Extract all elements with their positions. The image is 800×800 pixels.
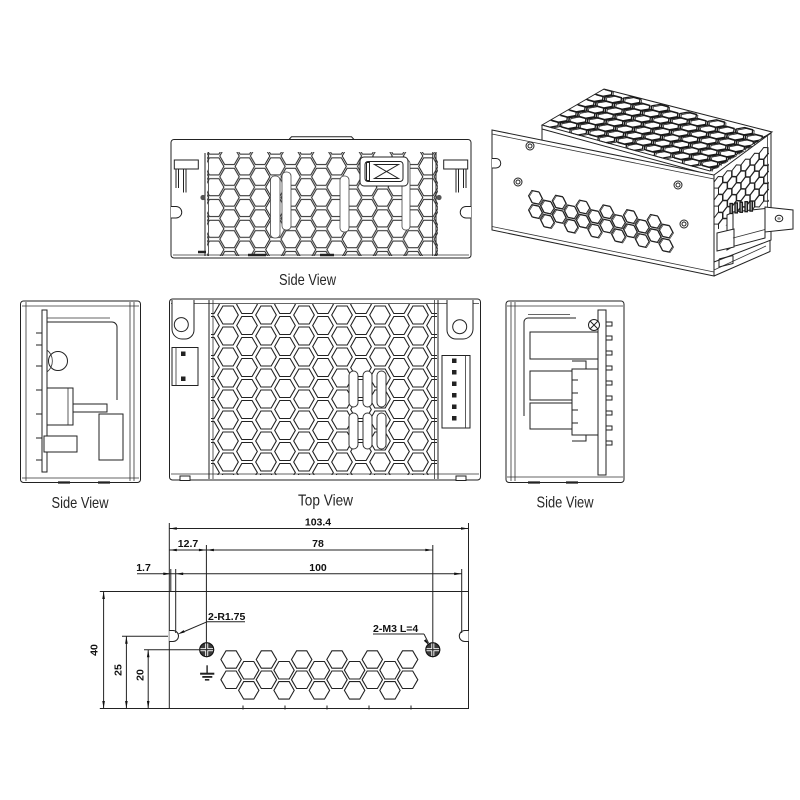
svg-text:20: 20 — [135, 669, 147, 681]
svg-text:1.7: 1.7 — [136, 562, 151, 574]
svg-text:40: 40 — [89, 644, 101, 656]
svg-text:Side View: Side View — [537, 495, 594, 512]
svg-text:2-M3 L=4: 2-M3 L=4 — [373, 623, 418, 635]
svg-text:Side View: Side View — [52, 495, 109, 512]
svg-text:100: 100 — [309, 562, 327, 574]
svg-text:Top View: Top View — [298, 493, 353, 510]
svg-text:2-R1.75: 2-R1.75 — [208, 611, 246, 623]
svg-text:103.4: 103.4 — [305, 517, 331, 529]
svg-text:78: 78 — [312, 538, 324, 550]
svg-text:Side View: Side View — [279, 272, 336, 289]
svg-text:12.7: 12.7 — [178, 538, 199, 550]
svg-text:25: 25 — [113, 664, 125, 676]
